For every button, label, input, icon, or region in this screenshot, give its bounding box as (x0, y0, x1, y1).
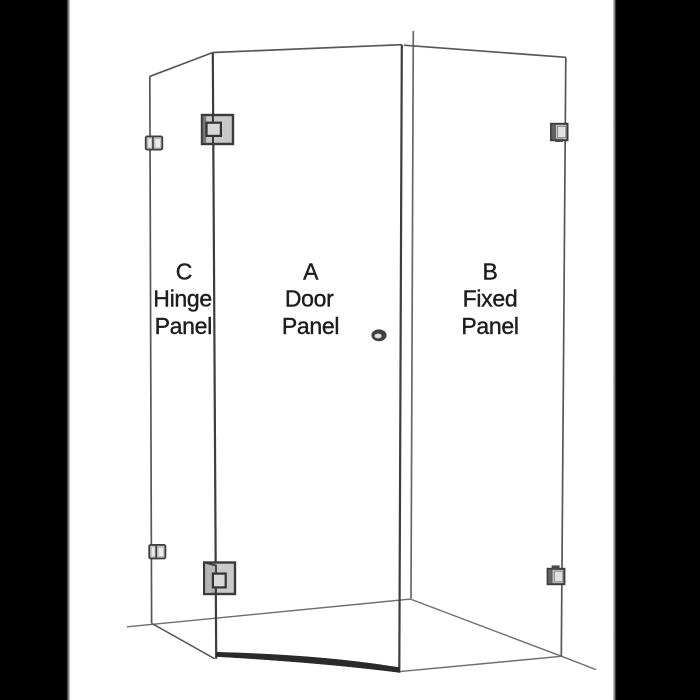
svg-text:A: A (303, 258, 319, 284)
svg-text:Fixed: Fixed (463, 285, 518, 311)
svg-text:C: C (176, 258, 192, 284)
svg-text:Hinge: Hinge (153, 285, 212, 311)
svg-text:B: B (482, 258, 497, 284)
svg-text:Panel: Panel (155, 313, 212, 339)
svg-text:Door: Door (285, 285, 334, 311)
svg-text:Panel: Panel (461, 313, 518, 339)
svg-text:Panel: Panel (282, 313, 339, 339)
